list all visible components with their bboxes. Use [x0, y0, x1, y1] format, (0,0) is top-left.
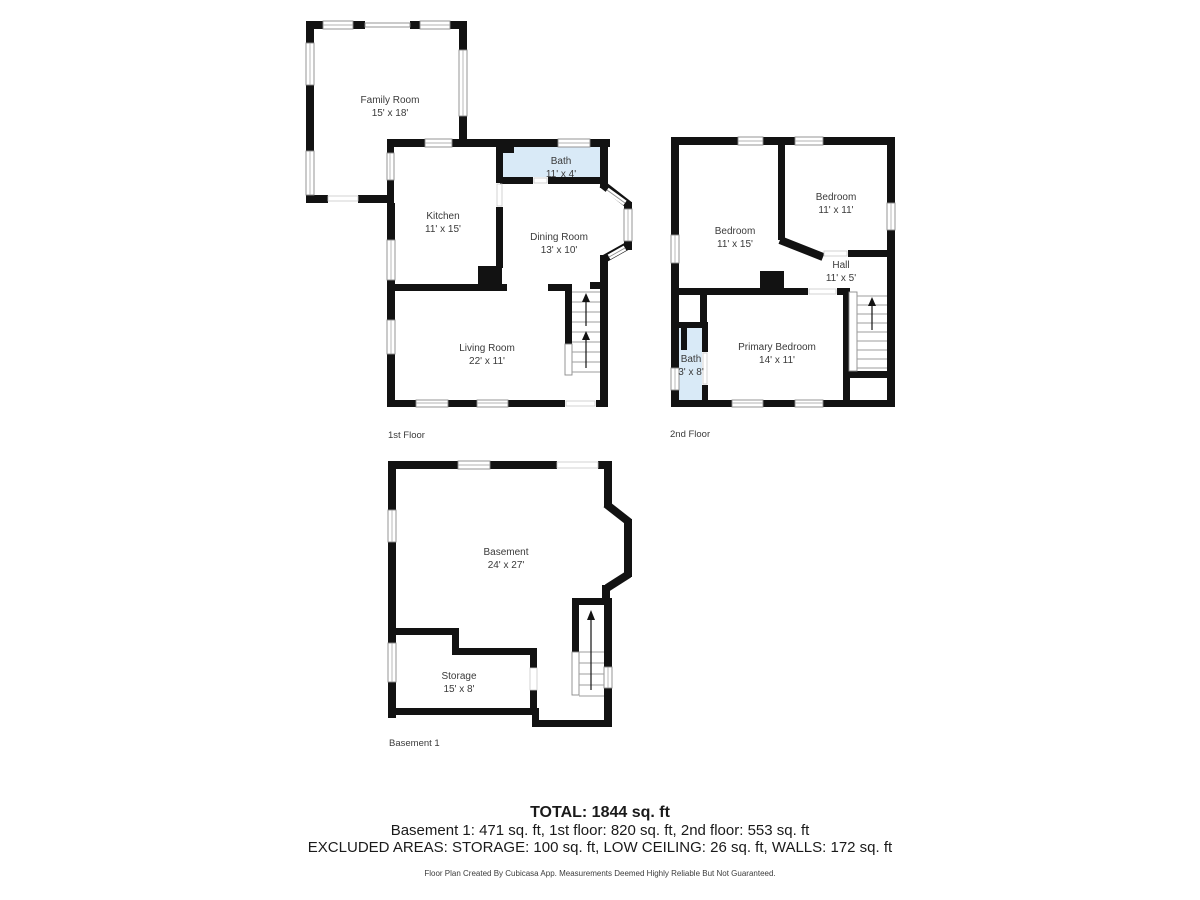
room-label-bath-1st: Bath 11' x 4'	[546, 155, 576, 181]
room-label-bedroom-left: Bedroom 11' x 15'	[715, 225, 756, 251]
floor-label-1st: 1st Floor	[388, 430, 425, 441]
basement-plan	[388, 461, 632, 727]
room-dims: 11' x 15'	[715, 238, 756, 251]
floorplan-page: Family Room 15' x 18' Kitchen 11' x 15' …	[0, 0, 1200, 900]
room-label-living-room: Living Room 22' x 11'	[459, 342, 515, 368]
summary-excluded-line: EXCLUDED AREAS: STORAGE: 100 sq. ft, LOW…	[0, 839, 1200, 856]
room-name: Hall	[826, 259, 856, 272]
room-name: Living Room	[459, 342, 515, 355]
room-dims: 3' x 8'	[678, 366, 704, 379]
room-label-storage: Storage 15' x 8'	[441, 670, 476, 696]
room-name: Kitchen	[425, 210, 461, 223]
room-label-bath-2nd: Bath 3' x 8'	[678, 353, 704, 379]
room-dims: 11' x 11'	[816, 204, 857, 217]
room-label-kitchen: Kitchen 11' x 15'	[425, 210, 461, 236]
room-dims: 22' x 11'	[459, 355, 515, 368]
area-summary: TOTAL: 1844 sq. ft Basement 1: 471 sq. f…	[0, 804, 1200, 856]
room-dims: 11' x 15'	[425, 223, 461, 236]
room-dims: 15' x 18'	[361, 107, 420, 120]
summary-floors-line: Basement 1: 471 sq. ft, 1st floor: 820 s…	[0, 822, 1200, 839]
room-name: Family Room	[361, 94, 420, 107]
room-dims: 11' x 5'	[826, 272, 856, 285]
room-label-primary-bedroom: Primary Bedroom 14' x 11'	[738, 341, 816, 367]
room-name: Bath	[678, 353, 704, 366]
basement-walls	[388, 461, 632, 727]
room-name: Bath	[546, 155, 576, 168]
room-name: Storage	[441, 670, 476, 683]
room-label-family-room: Family Room 15' x 18'	[361, 94, 420, 120]
room-name: Dining Room	[530, 231, 588, 244]
room-name: Basement	[483, 546, 528, 559]
room-dims: 15' x 8'	[441, 683, 476, 696]
second-floor-stairs	[849, 292, 887, 371]
room-name: Primary Bedroom	[738, 341, 816, 354]
room-label-bedroom-right: Bedroom 11' x 11'	[816, 191, 857, 217]
floorplan-canvas	[0, 0, 1200, 900]
room-label-basement: Basement 24' x 27'	[483, 546, 528, 572]
room-dims: 24' x 27'	[483, 559, 528, 572]
room-label-hall: Hall 11' x 5'	[826, 259, 856, 285]
room-label-dining-room: Dining Room 13' x 10'	[530, 231, 588, 257]
room-dims: 11' x 4'	[546, 168, 576, 181]
footer-disclaimer: Floor Plan Created By Cubicasa App. Meas…	[0, 869, 1200, 878]
summary-total: TOTAL: 1844 sq. ft	[0, 804, 1200, 822]
room-name: Bedroom	[715, 225, 756, 238]
room-dims: 13' x 10'	[530, 244, 588, 257]
floor-label-2nd: 2nd Floor	[670, 429, 710, 440]
room-name: Bedroom	[816, 191, 857, 204]
floor-label-basement: Basement 1	[389, 738, 440, 749]
room-dims: 14' x 11'	[738, 354, 816, 367]
